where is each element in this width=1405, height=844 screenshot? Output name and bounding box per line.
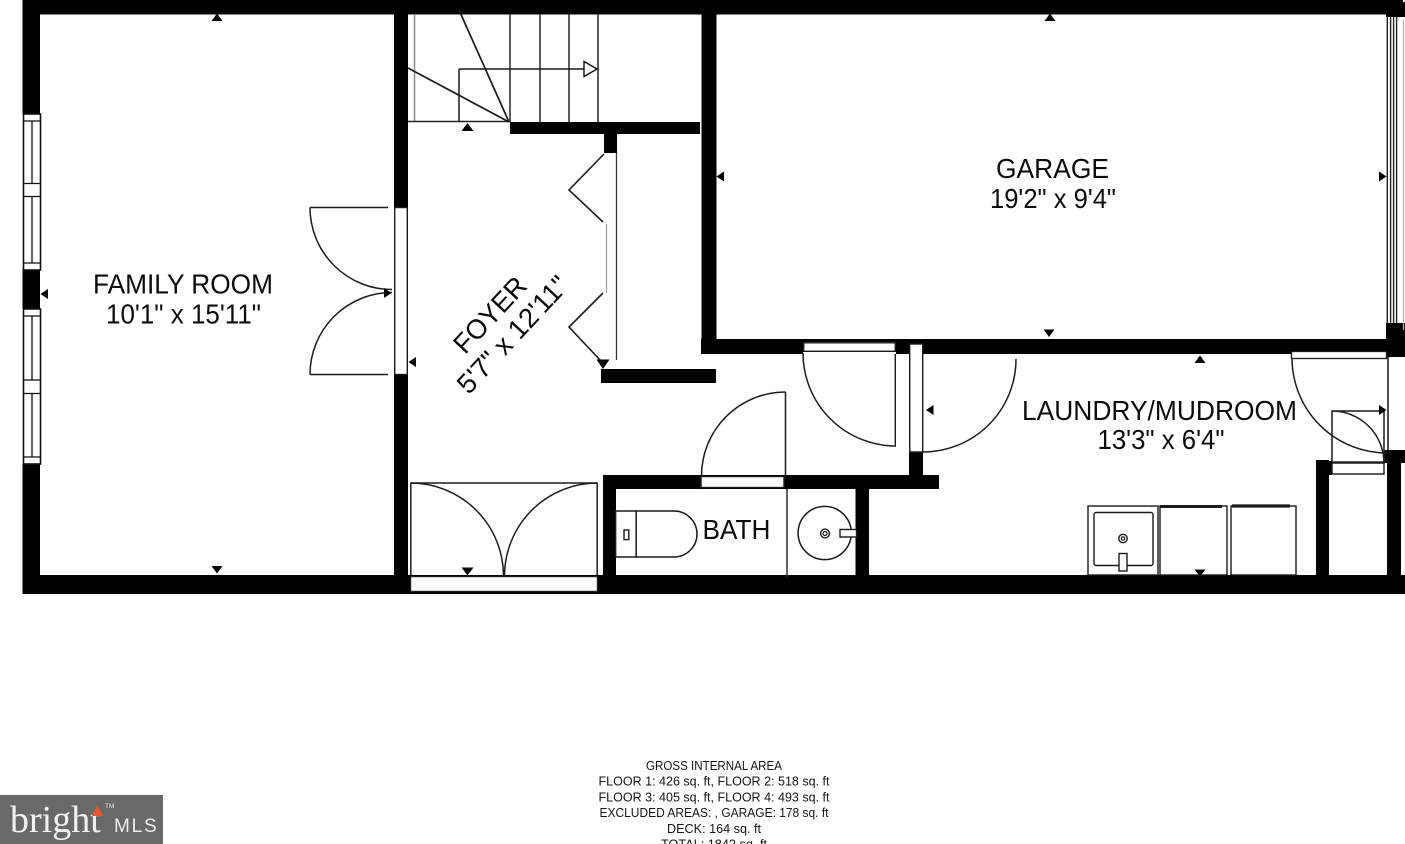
svg-text:LAUNDRY/MUDROOM: LAUNDRY/MUDROOM [1022,395,1297,426]
svg-text:DECK: 164 sq. ft: DECK: 164 sq. ft [667,821,761,836]
svg-text:GROSS INTERNAL AREA: GROSS INTERNAL AREA [646,758,782,773]
svg-text:bright: bright [10,799,101,841]
svg-text:10'1" x 15'11": 10'1" x 15'11" [106,299,261,330]
svg-text:FLOOR 3: 405 sq. ft, FLOOR 4:: FLOOR 3: 405 sq. ft, FLOOR 4: 493 sq. ft [599,789,830,804]
svg-text:EXCLUDED AREAS: , GARAGE: 178: EXCLUDED AREAS: , GARAGE: 178 sq. ft [600,805,829,820]
svg-text:13'3" x 6'4": 13'3" x 6'4" [1098,424,1225,455]
svg-text:FLOOR 1: 426 sq. ft, FLOOR 2:: FLOOR 1: 426 sq. ft, FLOOR 2: 518 sq. ft [599,774,830,789]
svg-text:TM: TM [105,803,114,810]
svg-text:MLS: MLS [114,816,158,837]
svg-text:GARAGE: GARAGE [996,153,1109,184]
svg-text:TOTAL: 1842 sq. ft: TOTAL: 1842 sq. ft [661,837,767,844]
svg-text:FAMILY ROOM: FAMILY ROOM [93,269,273,300]
svg-text:19'2" x 9'4": 19'2" x 9'4" [990,183,1116,214]
svg-text:BATH: BATH [703,514,771,545]
